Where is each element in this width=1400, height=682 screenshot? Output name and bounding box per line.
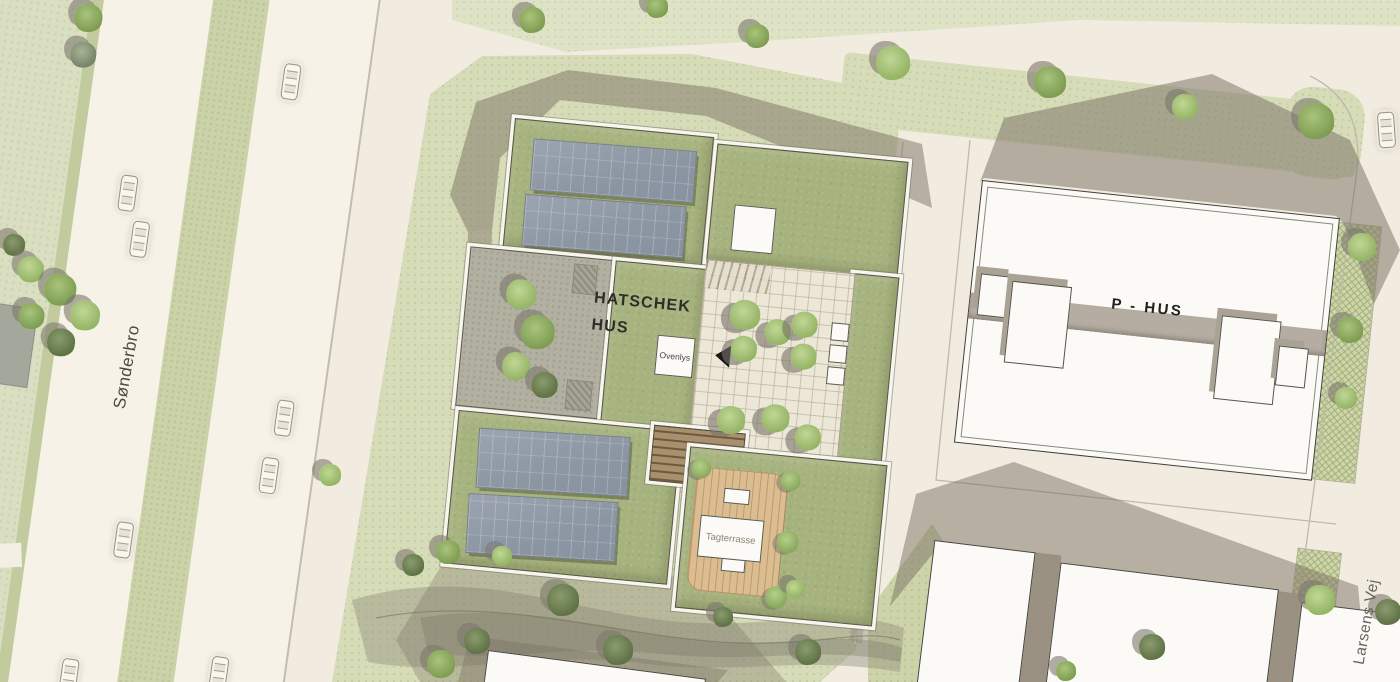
roof-northeast-block xyxy=(706,144,908,280)
terrace-bush xyxy=(764,585,788,609)
tree xyxy=(1335,387,1357,409)
main-building-label: HATSCHEK HUS xyxy=(590,284,692,347)
courtyard-steps xyxy=(705,260,771,294)
tree xyxy=(603,635,633,665)
tree xyxy=(1305,585,1335,615)
skylight-label: Ovenlys xyxy=(659,350,691,363)
skylight-box xyxy=(730,204,776,254)
tree xyxy=(436,540,460,564)
roof-terrace-block: Tagterrasse xyxy=(675,446,888,626)
tree xyxy=(1056,661,1076,681)
section-arrow-icon xyxy=(714,344,731,367)
tree xyxy=(492,546,512,566)
roof-southwest-block xyxy=(444,410,682,585)
solar-array xyxy=(521,194,687,259)
tree xyxy=(1034,66,1066,98)
solar-array xyxy=(530,138,698,203)
tree xyxy=(745,24,769,48)
tree xyxy=(1172,94,1198,120)
tree xyxy=(713,607,733,627)
stair-core xyxy=(977,273,1013,318)
car xyxy=(1377,111,1396,148)
tree xyxy=(319,464,341,486)
solar-array xyxy=(465,493,618,562)
south-building xyxy=(916,540,1036,682)
stair-core xyxy=(1275,346,1309,389)
tree xyxy=(786,580,804,598)
tree xyxy=(427,650,455,678)
tree xyxy=(464,628,490,654)
tree xyxy=(1337,317,1363,343)
bench-box xyxy=(826,366,846,386)
bench-box xyxy=(830,322,850,342)
tree xyxy=(1298,103,1334,139)
tree xyxy=(1139,634,1165,660)
solar-array xyxy=(475,428,630,497)
tree xyxy=(876,46,910,80)
roof-north-arm xyxy=(503,118,715,267)
parking-house-building: P - HUS xyxy=(954,180,1340,481)
stair-core xyxy=(1004,281,1072,369)
site-plan: Tagterrasse Ovenlys HATSCHEK HUS P - HUS xyxy=(0,0,1400,682)
tree xyxy=(547,584,579,616)
roof-terrace-label: Tagterrasse xyxy=(705,531,755,547)
tree xyxy=(519,7,545,33)
terrace-label-box: Tagterrasse xyxy=(697,515,765,563)
hatschek-hus-building: Tagterrasse Ovenlys HATSCHEK HUS xyxy=(465,118,933,676)
terrace-table xyxy=(723,488,750,505)
top-green-band xyxy=(452,0,1400,52)
stair-core xyxy=(1213,315,1282,405)
tree xyxy=(1348,233,1376,261)
south-building xyxy=(1044,563,1279,682)
grate xyxy=(564,379,593,411)
tree xyxy=(795,639,821,665)
bench-box xyxy=(828,344,848,364)
tree xyxy=(402,554,424,576)
